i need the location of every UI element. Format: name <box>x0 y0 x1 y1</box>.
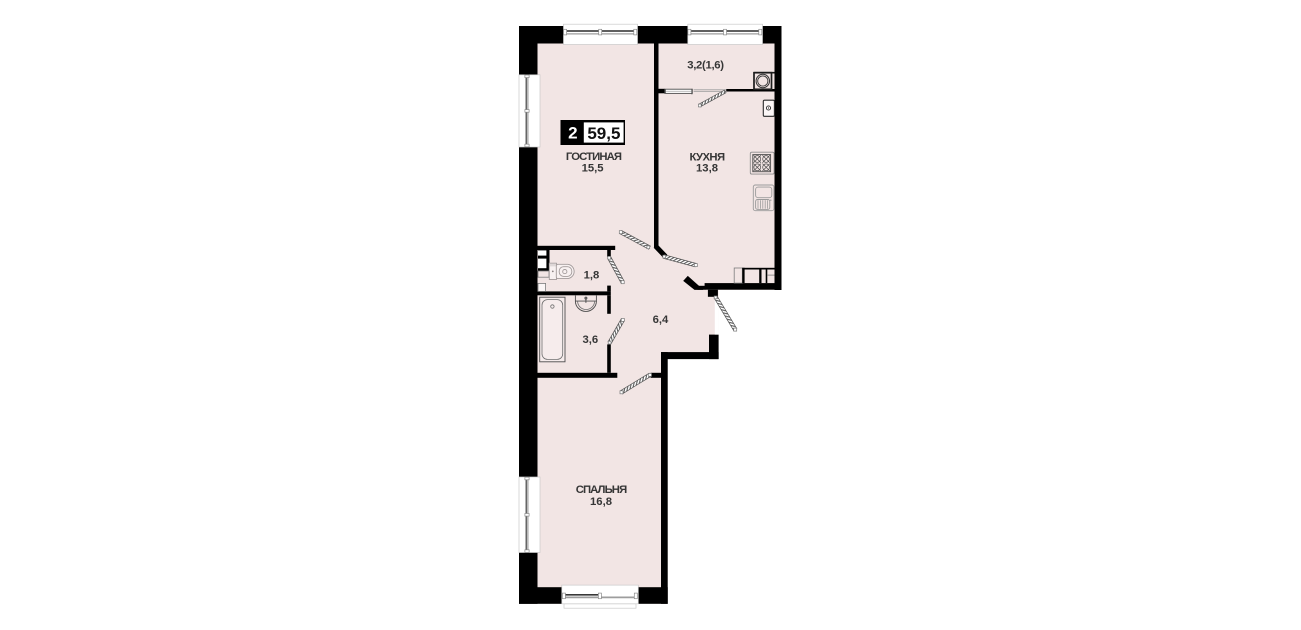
svg-text:2: 2 <box>568 124 577 143</box>
svg-text:16,8: 16,8 <box>590 496 612 508</box>
svg-text:13,8: 13,8 <box>696 162 718 174</box>
svg-text:6,4: 6,4 <box>653 314 669 326</box>
svg-text:СПАЛЬНЯ: СПАЛЬНЯ <box>576 484 627 496</box>
svg-text:1,8: 1,8 <box>584 269 600 281</box>
svg-text:15,5: 15,5 <box>582 162 604 174</box>
svg-text:3,6: 3,6 <box>582 334 598 346</box>
svg-text:ГОСТИНАЯ: ГОСТИНАЯ <box>566 151 622 163</box>
svg-text:3,2(1,6): 3,2(1,6) <box>687 59 724 71</box>
svg-text:59,5: 59,5 <box>587 124 620 143</box>
